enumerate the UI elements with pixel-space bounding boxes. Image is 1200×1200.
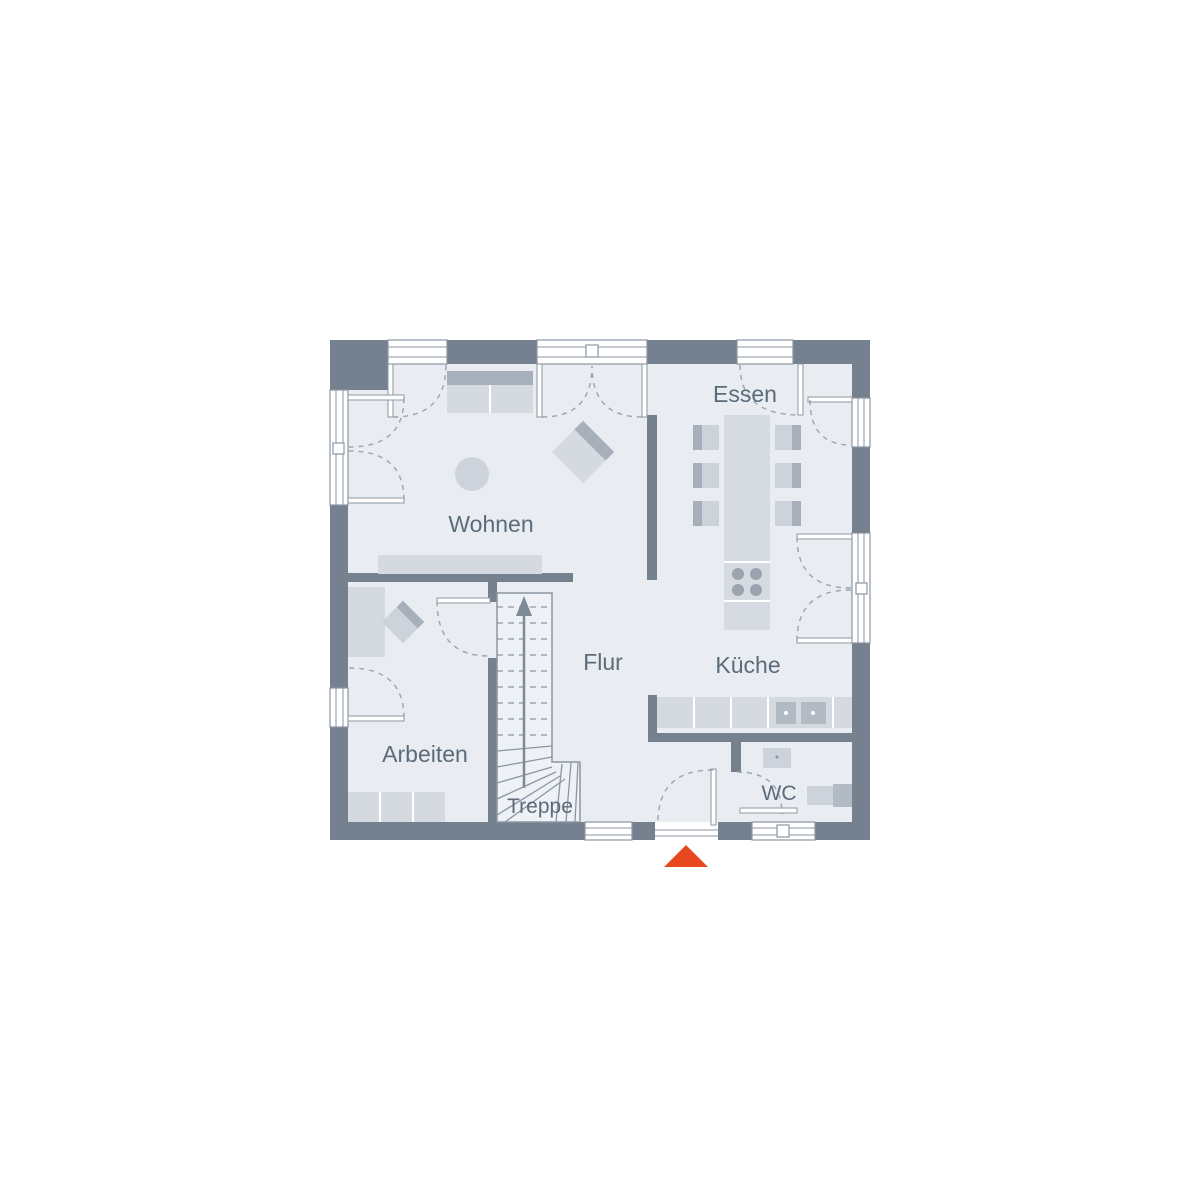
toilet-tank (833, 784, 852, 807)
window (537, 340, 647, 364)
window (852, 398, 870, 447)
toilet-bowl (807, 786, 833, 805)
door-leaf (537, 364, 542, 417)
wall-kitchen-wc (648, 733, 852, 742)
window-post-marker (777, 825, 789, 837)
entrance-triangle-icon (664, 845, 708, 867)
door-leaf (348, 395, 404, 400)
window (330, 688, 348, 727)
wc-shelf (740, 808, 797, 813)
wall-stair-lower (488, 658, 497, 822)
floorplan-canvas: Wohnen Essen Küche Flur Arbeiten Treppe … (0, 0, 1200, 1200)
sink-drain (811, 711, 815, 715)
window (388, 340, 447, 364)
sink-drain (784, 711, 788, 715)
round-rug (455, 457, 489, 491)
door-leaf (388, 364, 393, 417)
door-leaf (797, 638, 852, 643)
room-label-kueche: Küche (715, 652, 780, 678)
window-post-marker (856, 583, 867, 594)
window (752, 822, 815, 840)
wall-wohnen-arbeiten (348, 573, 573, 582)
dining-chairs-left (693, 425, 719, 526)
window (330, 390, 348, 505)
wall-flur-essen-divider (647, 415, 657, 580)
dining-island (724, 415, 770, 630)
room-label-treppe: Treppe (507, 795, 573, 818)
door-leaf (437, 598, 490, 603)
kitchen-furniture (657, 697, 852, 728)
window (585, 822, 632, 840)
sideboard (378, 555, 542, 574)
room-label-flur: Flur (583, 649, 623, 675)
room-label-essen: Essen (713, 381, 777, 407)
room-label-arbeiten: Arbeiten (382, 741, 468, 767)
door-leaf (348, 716, 404, 721)
window (737, 340, 793, 364)
wc-sink-drain (776, 756, 779, 759)
wall-corner-block (330, 340, 388, 390)
room-label-wohnen: Wohnen (448, 511, 533, 537)
dining-chairs-right (775, 425, 801, 526)
floorplan-drawing: Wohnen Essen Küche Flur Arbeiten Treppe … (0, 0, 1200, 1200)
door-leaf (808, 397, 852, 402)
room-label-wc: WC (762, 782, 797, 805)
door-leaf (642, 364, 647, 417)
wall-wc-stub (731, 742, 741, 772)
entrance-opening (655, 822, 718, 840)
window-post-marker (586, 345, 598, 357)
window-post-marker (333, 443, 344, 454)
window (852, 533, 870, 643)
door-leaf (798, 364, 803, 415)
desk (348, 587, 385, 657)
office-cabinets (348, 792, 445, 822)
sofa-backrest (447, 371, 533, 385)
door-leaf (797, 534, 852, 539)
entrance-door-leaf (711, 769, 716, 825)
door-leaf (348, 498, 404, 503)
